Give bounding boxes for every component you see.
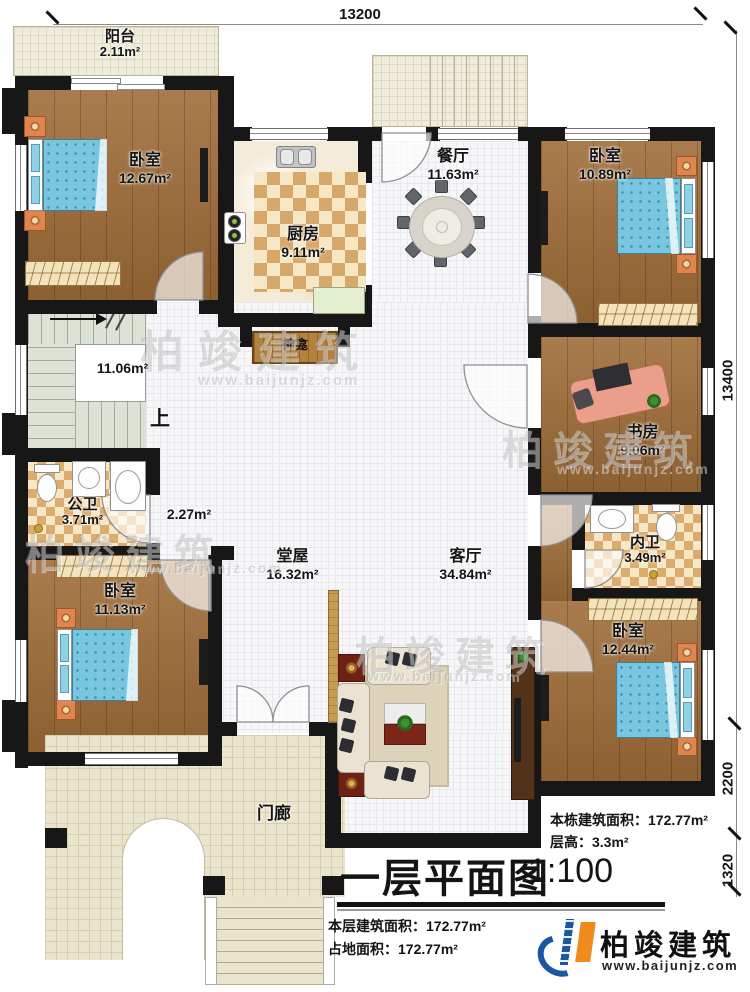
- room-label-bedroom-br: 卧室 12.44m²: [578, 623, 678, 657]
- window: [565, 128, 650, 140]
- dim-top: 13200: [320, 6, 400, 23]
- window: [250, 128, 328, 140]
- nightstand: [24, 210, 46, 231]
- stairs-flight-bottom: [75, 402, 146, 452]
- plant: [646, 393, 662, 409]
- porch-pillar: [203, 876, 225, 895]
- wardrobe: [598, 303, 698, 326]
- stove-burner: [228, 229, 241, 242]
- room-label-dining: 餐厅 11.63m²: [398, 148, 508, 182]
- nightstand: [677, 737, 697, 756]
- toilet-tank: [652, 504, 680, 512]
- wall-segment: [541, 781, 715, 796]
- window: [85, 753, 178, 765]
- balcony-sliding-door: [117, 84, 165, 90]
- wardrobe: [588, 598, 698, 621]
- title-underline: [337, 902, 665, 907]
- wall-segment: [528, 337, 541, 358]
- terrace-louver: [430, 56, 526, 126]
- window: [702, 368, 714, 415]
- window: [15, 640, 27, 702]
- entry-steps: [217, 897, 323, 985]
- wall-segment: [528, 546, 541, 620]
- dining-table-center: [436, 221, 448, 233]
- bed-pillow: [60, 634, 69, 662]
- sink-basin: [598, 509, 626, 529]
- wall-segment: [222, 127, 252, 141]
- bed-pillow: [31, 144, 40, 172]
- dim-tick: [693, 6, 707, 20]
- dim-line-top: [53, 24, 703, 25]
- watermark-url: www.baijunjz.com: [368, 668, 521, 684]
- stove-burner: [228, 215, 241, 228]
- window: [702, 650, 714, 740]
- dim-right-total: 13400: [720, 351, 737, 411]
- bed-pillow: [683, 668, 692, 698]
- nightstand: [676, 254, 697, 274]
- tv: [200, 148, 208, 202]
- wall-segment: [15, 448, 160, 462]
- tv: [514, 698, 521, 762]
- window: [702, 505, 714, 560]
- balcony-sliding-door: [71, 78, 121, 84]
- wall-segment: [518, 127, 567, 141]
- wall-segment: [15, 300, 157, 314]
- wall-pilaster: [2, 88, 15, 134]
- corridor-br-floor: [541, 505, 572, 601]
- stairs-arrow-head: [96, 313, 107, 325]
- note-floor-height: 层高：3.3m²: [550, 832, 629, 852]
- corridor-area-label: 2.27m²: [156, 506, 222, 522]
- dim-tick: [723, 20, 737, 34]
- room-label-bedroom-tl: 卧室 12.67m²: [95, 152, 195, 186]
- room-label-balcony: 阳台 2.11m²: [70, 28, 170, 60]
- tv: [540, 191, 548, 245]
- bed-pillow: [684, 218, 693, 248]
- room-label-ensuite: 内卫 3.49m²: [605, 534, 685, 566]
- watermark-text: 柏竣建筑: [140, 316, 372, 380]
- watermark-url: www.baijunjz.com: [198, 372, 359, 389]
- dim-right-bottom: 1320: [720, 843, 737, 899]
- footer-floor-area: 本层建筑面积：172.77m²: [328, 916, 486, 936]
- bed-pillow: [683, 702, 692, 732]
- wall-segment: [372, 127, 382, 141]
- nightstand: [24, 116, 46, 137]
- wall-segment: [208, 722, 237, 736]
- page-title-scale: 1:100: [528, 852, 613, 891]
- washing-machine-drum: [78, 467, 100, 489]
- wall-segment: [146, 448, 160, 495]
- wall-segment: [199, 300, 234, 314]
- brand-logo-building-orange: [575, 922, 596, 962]
- stairs-flight-left: [28, 344, 75, 452]
- porch-pillar: [45, 828, 67, 848]
- watermark-url: www.baijunjz.com: [556, 460, 709, 476]
- wall-segment: [572, 505, 585, 550]
- steps-rail: [205, 897, 217, 985]
- porch-arch: [122, 818, 205, 960]
- wall-pilaster: [2, 700, 15, 752]
- page-title: 一层平面图: [340, 846, 550, 904]
- tv: [199, 639, 208, 685]
- window: [702, 162, 714, 258]
- dim-tick: [727, 826, 741, 840]
- stairs-up-label: 上: [146, 408, 174, 431]
- floor-drain: [649, 570, 658, 579]
- stairs-arrow-line: [50, 318, 98, 320]
- side-table: [338, 770, 365, 797]
- bed-pillow: [60, 665, 69, 693]
- room-label-porch: 门廊: [238, 804, 310, 824]
- dim-tick: [45, 10, 59, 24]
- wall-segment: [163, 76, 234, 90]
- window: [15, 345, 27, 415]
- kitchen-sink-basin: [298, 149, 312, 165]
- wall-pilaster: [2, 413, 15, 455]
- room-label-living: 客厅 34.84m²: [418, 548, 513, 582]
- dim-right-mid: 2200: [720, 751, 737, 807]
- fridge: [313, 287, 365, 314]
- kitchen-sink-basin: [280, 149, 294, 165]
- wall-segment: [218, 90, 234, 315]
- nightstand: [56, 700, 76, 720]
- watermark-url: www.baijunjz.com: [130, 560, 283, 576]
- brand-url: www.baijunjz.com: [602, 958, 738, 973]
- nightstand: [677, 643, 697, 662]
- room-label-kitchen: 厨房 9.11m²: [258, 226, 348, 260]
- note-building-area: 本栋建筑面积：172.77m²: [550, 810, 708, 830]
- dim-tick: [727, 716, 741, 730]
- window: [15, 145, 27, 211]
- window: [438, 128, 518, 140]
- wardrobe: [25, 261, 121, 286]
- wall-segment: [15, 76, 71, 90]
- bed-pillow: [684, 184, 693, 214]
- plant: [396, 714, 414, 732]
- wall-segment: [327, 127, 372, 141]
- footer-land-area: 占地面积：172.77m²: [328, 939, 458, 959]
- nightstand: [676, 156, 697, 176]
- toilet-tank: [34, 464, 60, 473]
- title-underline-thin: [337, 909, 665, 911]
- room-label-bedroom-bl: 卧室 11.13m²: [70, 583, 170, 617]
- room-label-bedroom-tr: 卧室 10.89m²: [555, 148, 655, 182]
- bed-pillow: [31, 176, 40, 204]
- floor-plan: 阳台 2.11m² 卧室 12.67m² 厨房 9.11m² 餐厅 11.63m…: [0, 0, 750, 992]
- sofa: [364, 761, 430, 799]
